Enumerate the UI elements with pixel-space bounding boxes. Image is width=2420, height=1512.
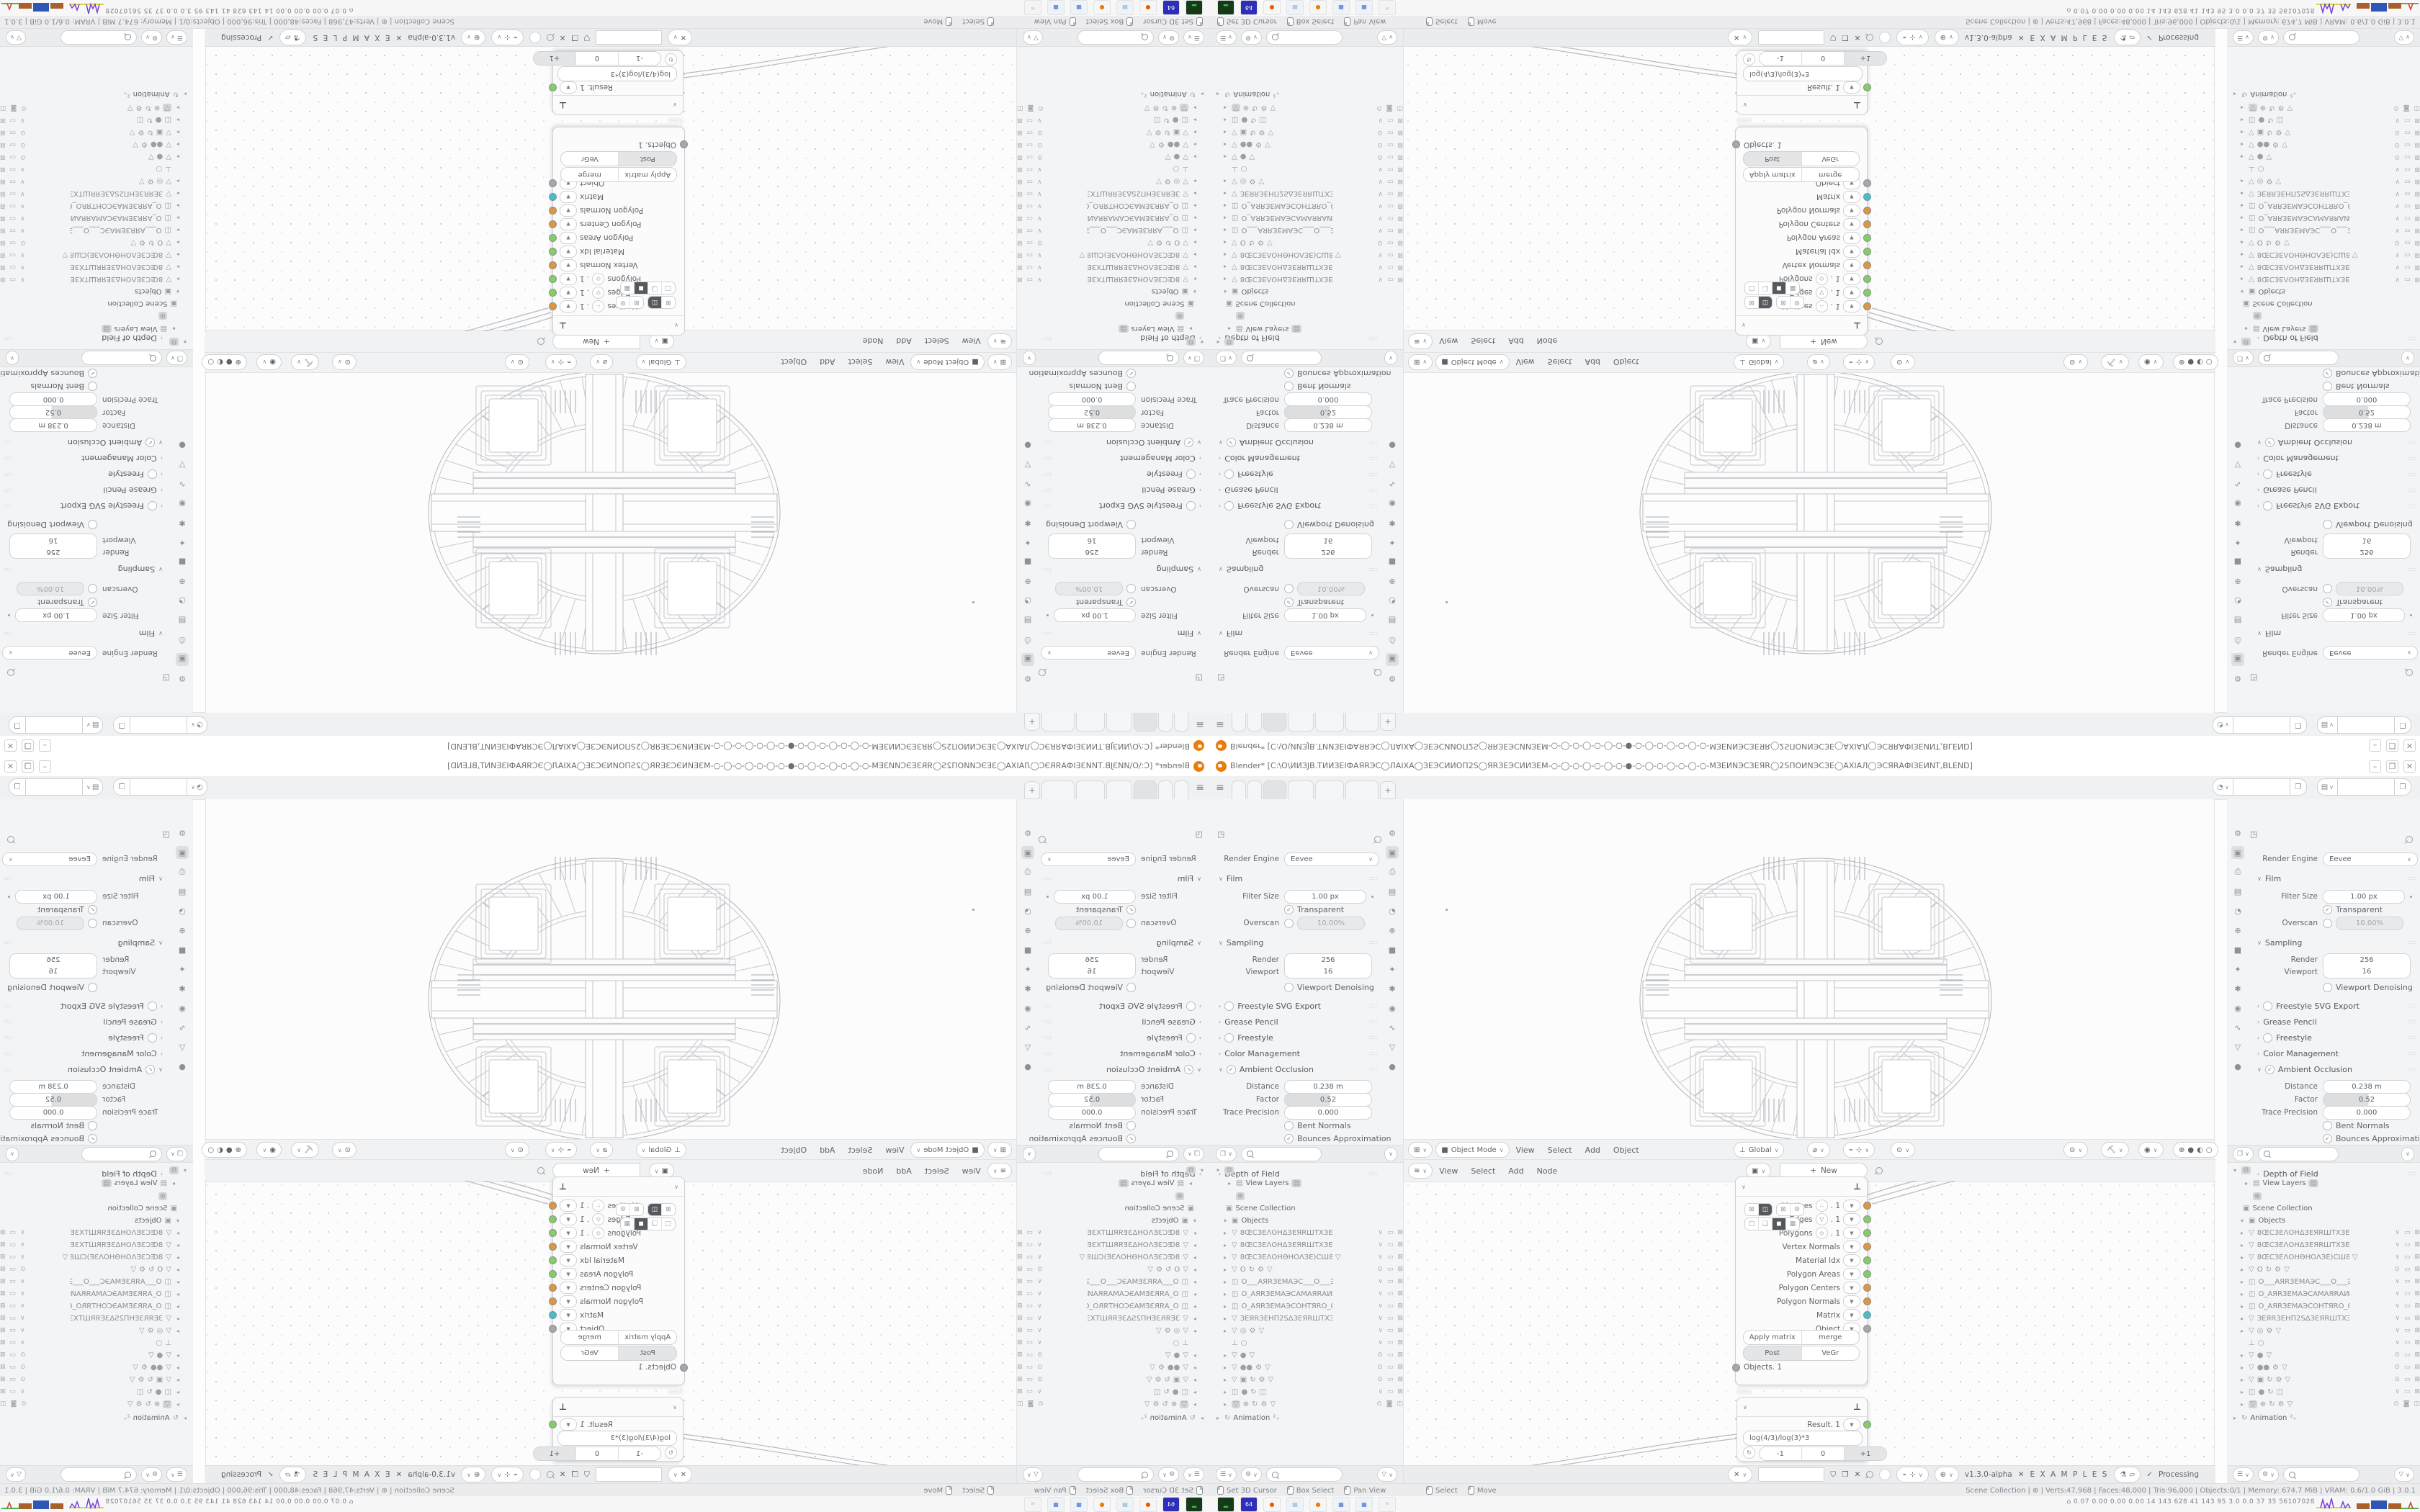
outliner-object-row[interactable]: ▸▽⊕↻⚙▽⊙◙◫ — [1222, 1398, 1409, 1410]
ao-checkbox[interactable]: ✓ — [2265, 1065, 2275, 1074]
outliner-object-row[interactable]: ▸▽ЗЕЯRЗЕНП2SΔЗЕЯRШТХЗЕТОТЗЕХТІЕ∨▭⊠ — [1222, 1313, 1409, 1324]
filter-size-field[interactable]: 1.00 px — [15, 609, 97, 623]
menu-add[interactable]: Add — [896, 1166, 911, 1176]
property-tab-icon[interactable]: ⊕ — [2231, 575, 2244, 588]
formula-input[interactable]: log(4/3)/log(3)*3 — [1743, 1431, 1863, 1446]
collapse-icon[interactable]: ∨ — [673, 1404, 677, 1410]
close-button[interactable]: ✕ — [2403, 760, 2416, 773]
viewport-denoising-toggle[interactable] — [1284, 983, 1294, 992]
property-tab-icon[interactable]: ▤ — [1021, 614, 1034, 627]
section-color-management[interactable]: ›Color Management∷∷ — [2249, 452, 2420, 465]
post-button[interactable]: Post — [619, 1346, 677, 1360]
overlays-dropdown[interactable]: ◉∨ — [2138, 354, 2164, 370]
outliner-object-row[interactable]: ▸▽●●⚙▽⊙▭⊠ — [1011, 1362, 1198, 1373]
property-tab-icon[interactable]: ▤ — [2231, 885, 2244, 898]
editor-type-dropdown[interactable]: ≋∨ — [987, 333, 1012, 349]
floppy-64-icon[interactable]: 64 — [1162, 0, 1180, 15]
samples-render-field[interactable]: 256 — [2323, 546, 2411, 559]
snap-toggle[interactable]: ⌁⊹∨ — [545, 354, 577, 370]
outliner-object-row[interactable]: ▸▽⊕↻⚙▽⊙◙◫ — [2238, 102, 2420, 114]
workspace-tab[interactable] — [1288, 780, 1314, 799]
filter-size-field[interactable]: 1.00 px — [1054, 890, 1136, 904]
snap-target-dropdown[interactable]: ⌀∨ — [1807, 1142, 1830, 1158]
menu-add[interactable]: Add — [1508, 337, 1523, 346]
property-tab-icon[interactable]: ● — [176, 1060, 189, 1073]
overlay-toggle[interactable] — [529, 32, 541, 43]
display-mode-mini-button[interactable]: ▦ — [1786, 282, 1799, 294]
menu-burger-icon[interactable]: ≡ — [1216, 782, 1224, 793]
outliner-object-row[interactable]: ▸▽8ŒCЗЕΛОНѲНОΛЗЕ)СШ8▽∨▭⊠ — [2238, 1251, 2420, 1263]
processing-label[interactable]: Processing — [221, 33, 261, 42]
outliner-object-row[interactable]: ⊥○∨▭⊠ — [1011, 1337, 1198, 1349]
id-selector-viewlayer[interactable]: ▤∨ ❐ — [9, 779, 103, 795]
workspace-tab[interactable] — [1232, 780, 1246, 799]
ao-trace-field[interactable]: 0.000 — [1284, 393, 1372, 407]
property-tab-icon[interactable]: ⊕ — [176, 575, 189, 588]
node-editor-canvas[interactable]: ∨⊥ Vertices∴. 1▼Edges▽. 1▼Polygons◇. 1▼V… — [1404, 47, 2215, 331]
workspace-tab[interactable] — [1247, 713, 1262, 732]
result-node[interactable]: ∨⊥ Result. 1 ▼ log(4/3)/log(3)*3 ↻ -10+1 — [1736, 1397, 1868, 1462]
menu-burger-icon[interactable]: ≡ — [1196, 782, 1204, 793]
outliner-object-row[interactable]: ▸▽O↻⚙▽⊙▭⊠ — [0, 237, 181, 248]
id-selector-viewlayer[interactable]: ▤∨ ❐ — [2317, 717, 2411, 733]
socket-dropdown[interactable]: ▼ — [560, 1418, 577, 1431]
tree-type-dropdown[interactable]: ▣∨ — [649, 333, 674, 349]
property-tab-icon[interactable]: ◔ — [176, 904, 189, 917]
outliner-object-row[interactable]: ▸▽ЗЕЯRЗЕНП2SΔЗЕЯRШТХЗЕТОТЗЕХТІЕ∨▭⊠ — [0, 1313, 181, 1324]
section-film[interactable]: ∨Film∷∷ — [1210, 872, 1388, 885]
outliner-object-row[interactable]: ▸◫О_АЯRЗЕМАЭСАМАЯRАИNАП__О∨▭⊠ — [0, 212, 181, 224]
section-freestyle-svg[interactable]: ›Freestyle SVG Export∷∷ — [1032, 999, 1210, 1012]
blender-icon[interactable]: ● — [1309, 0, 1327, 15]
workspace-tab[interactable] — [1288, 713, 1314, 732]
transparent-checkbox[interactable]: ✓ — [2323, 905, 2332, 914]
node-output-socket-row[interactable]: Matrix▼ — [1816, 1308, 1868, 1322]
editor-type-dropdown[interactable]: ❐∨ — [1216, 351, 1237, 366]
copy-icon[interactable]: ❐ — [1842, 1470, 1848, 1479]
ao-distance-field[interactable]: 0.238 m — [1284, 1080, 1372, 1094]
property-tab-icon[interactable]: ⊕ — [2231, 924, 2244, 937]
proportional-edit[interactable]: ⊙∨ — [505, 1142, 529, 1158]
vegr-button[interactable]: VeGr — [561, 152, 619, 166]
outliner-object-row[interactable]: ▸▽O↻⚙▽⊙▭⊠ — [2238, 237, 2420, 248]
blender-icon[interactable]: ● — [1309, 1497, 1327, 1512]
apply-matrix-button[interactable]: Apply matrix — [1744, 168, 1802, 181]
result-output-socket[interactable] — [549, 84, 557, 91]
workspace-tab[interactable] — [1263, 780, 1286, 799]
outliner-object-row[interactable]: ▸▽ЗЕЯRЗЕНП2SΔЗЕЯRШТХЗЕТОТЗЕХТІЕ∨▭⊠ — [0, 188, 181, 199]
copy-icon[interactable]: ❐ — [1842, 33, 1848, 42]
pin-icon[interactable] — [545, 32, 555, 42]
workspace-tab[interactable] — [1041, 780, 1075, 799]
section-film[interactable]: ∨Film∷∷ — [1032, 627, 1210, 640]
workspace-tab[interactable] — [1315, 780, 1344, 799]
overscan-field[interactable]: 10.00% — [17, 917, 84, 930]
property-tab-icon[interactable]: ▣ — [1021, 653, 1034, 666]
section-grease-pencil[interactable]: ›Grease Pencil∷∷ — [1210, 1015, 1388, 1028]
filter-dropdown[interactable]: ∨ — [1384, 1147, 1397, 1161]
property-tab-icon[interactable]: ▤ — [1386, 885, 1399, 898]
viewport-3d[interactable] — [1404, 373, 2215, 713]
editor-type-dropdown[interactable]: ❐∨ — [2233, 351, 2254, 366]
outliner-object-row[interactable]: ▸▽8ŒCЗЕΛОНѲНОΛЗЕ)СШ8▽∨▭⊠ — [1011, 1251, 1198, 1263]
get-objects-data-node[interactable]: ∨⊥ Vertices∴. 1▼Edges▽. 1▼Polygons◇. 1▼V… — [1735, 127, 1868, 336]
outliner-object-row[interactable]: ▸▽●●⚙▽⊙▭⊠ — [0, 139, 181, 150]
ao-distance-field[interactable]: 0.238 m — [9, 419, 97, 433]
overscan-toggle[interactable] — [2323, 585, 2332, 594]
apply-matrix-button[interactable]: Apply matrix — [1744, 1331, 1802, 1344]
property-tab-icon[interactable]: ∿ — [2231, 478, 2244, 491]
workspace-tabs[interactable]: + — [1024, 713, 1188, 732]
node-output-socket-row[interactable]: Matrix▼ — [552, 190, 604, 204]
editor-type-dropdown[interactable]: ❐∨ — [1183, 1147, 1204, 1161]
property-tab-icon[interactable]: ◔ — [2231, 595, 2244, 608]
section-sampling[interactable]: ∨Sampling∷∷ — [1032, 936, 1210, 949]
ao-checkbox[interactable]: ✓ — [1227, 1065, 1236, 1074]
terminal-icon[interactable]: ▂ — [1217, 1497, 1234, 1512]
node-output-socket-row[interactable]: Matrix▼ — [1816, 190, 1868, 204]
node-output-socket-row[interactable]: Material Idx▼ — [552, 245, 624, 258]
id-selector-scene[interactable]: ◔∨ ❐ — [2213, 779, 2307, 795]
section-freestyle-svg[interactable]: ›Freestyle SVG Export∷∷ — [1210, 999, 1388, 1012]
property-tab-icon[interactable]: ✦ — [1021, 536, 1034, 549]
snap-target-dropdown[interactable]: ⌀∨ — [590, 1142, 613, 1158]
menu-burger-icon[interactable]: ≡ — [1216, 719, 1224, 730]
display-mode-mini-button[interactable]: ◼ — [634, 282, 647, 294]
section-sampling[interactable]: ∨Sampling∷∷ — [1032, 563, 1210, 576]
property-tab-icon[interactable]: ■ — [2231, 556, 2244, 569]
workspace-tab[interactable] — [1174, 780, 1188, 799]
ao-distance-field[interactable]: 0.238 m — [2323, 1080, 2411, 1094]
collapse-icon[interactable]: ∨ — [1742, 323, 1746, 329]
outliner-object-row[interactable]: ▸▽◎⚙▽∨▭⊠ — [1011, 1325, 1198, 1336]
search-input[interactable] — [81, 351, 162, 366]
collapse-icon[interactable]: ∨ — [673, 102, 677, 109]
section-color-management[interactable]: ›Color Management∷∷ — [1210, 1047, 1388, 1060]
unlink-icon[interactable]: ✕ — [560, 1470, 566, 1479]
outliner-object-row[interactable]: ⊥○∨▭⊠ — [2238, 1337, 2420, 1349]
filter-size-field[interactable]: 1.00 px — [2323, 609, 2405, 623]
workspace-tab[interactable] — [1134, 780, 1157, 799]
display-mode-mini-button[interactable]: ◼ — [1773, 1218, 1786, 1230]
title-bar[interactable]: Blender* [C:\O\ИИЗЈВ.ТИИЗЕІФАЯRЭС◯ЛАІХА◯… — [0, 756, 1210, 777]
property-tab-icon[interactable]: ⚙ — [1386, 672, 1399, 685]
property-tab-icon[interactable]: ⚙ — [1386, 827, 1399, 840]
outliner-object-row[interactable]: ▸▽⊕↻⚙▽⊙◙◫ — [0, 1398, 181, 1410]
ao-factor-slider[interactable]: 0.52 — [9, 1093, 97, 1107]
outliner-object-row[interactable]: ▸◫О_АЯRЗЕМАЭСОНТЯRО_О_ОЯRТН∨▭⊠ — [0, 200, 181, 212]
bent-normals-toggle[interactable] — [1284, 382, 1294, 392]
vegr-button[interactable]: VeGr — [1802, 152, 1860, 166]
samples-viewport-field[interactable]: 16 — [1284, 534, 1372, 546]
section-grease-pencil[interactable]: ›Grease Pencil∷∷ — [1032, 484, 1210, 497]
snap-target-dropdown[interactable]: ⌀∨ — [1807, 354, 1830, 370]
merge-button[interactable]: merge — [561, 168, 619, 181]
viewport-denoising-toggle[interactable] — [88, 983, 97, 992]
property-tab-icon[interactable]: ⊕ — [1386, 575, 1399, 588]
bounces-checkbox[interactable]: ✓ — [1126, 369, 1136, 379]
filter-dropdown[interactable]: ▽∨ — [2394, 1467, 2414, 1482]
menu-add[interactable]: Add — [1508, 1166, 1523, 1176]
workspace-tab[interactable] — [1263, 713, 1286, 732]
node-output-socket-row[interactable]: Vertex Normals▼ — [1782, 1240, 1868, 1254]
visibility-dropdown[interactable]: ⊙∨ — [332, 1142, 357, 1158]
merge-button[interactable]: merge — [1802, 1331, 1860, 1344]
viewport-denoising-toggle[interactable] — [1126, 983, 1136, 992]
workspace-tab[interactable] — [1345, 780, 1379, 799]
ao-factor-slider[interactable]: 0.52 — [1284, 1093, 1372, 1107]
node-output-socket-row[interactable]: Polygon Areas▼ — [552, 231, 633, 245]
freestyle-toggle[interactable] — [1186, 1033, 1196, 1043]
section-freestyle[interactable]: ›Freestyle∷∷ — [1210, 468, 1388, 481]
id-selector-viewlayer[interactable]: ▤∨ ❐ — [2317, 779, 2411, 795]
result-output-socket[interactable] — [1863, 84, 1871, 91]
filter-dropdown[interactable]: ∨ — [1023, 351, 1036, 366]
section-freestyle-svg[interactable]: ›Freestyle SVG Export∷∷ — [0, 999, 171, 1012]
section-film[interactable]: ∨Film∷∷ — [2249, 872, 2420, 885]
section-ambient-occlusion[interactable]: ∨✓Ambient Occlusion∷∷ — [1032, 436, 1210, 449]
step-button[interactable]: 0 — [575, 1447, 618, 1460]
get-objects-data-node[interactable]: ∨⊥ Vertices∴. 1▼Edges▽. 1▼Polygons◇. 1▼V… — [552, 127, 685, 336]
outliner-object-row[interactable]: ▸◫●↻◫∨▭⊠ — [2238, 1386, 2420, 1398]
tree-selector-dropdown[interactable]: ✕∨ — [668, 30, 692, 45]
outliner-object-row[interactable]: ▸◫О_АЯRЗЕМАЭСОНТЯRО_О_ОЯRТН∨▭⊠ — [2238, 200, 2420, 212]
outliner-object-row[interactable]: ▸◫О_АЯRЗЕМАЭСОНТЯRО_О_ОЯRТН∨▭⊠ — [2238, 1300, 2420, 1312]
outliner-object-row[interactable]: ▸▽◎⚙▽∨▭⊠ — [0, 176, 181, 187]
display-mode-mini-button[interactable]: ▦ — [621, 282, 634, 294]
outliner-object-row[interactable]: ▸◫О_АЯRЗЕМАЭСАМАЯRАИNАП__О∨▭⊠ — [0, 1288, 181, 1300]
visibility-dropdown[interactable]: ⊙∨ — [2063, 354, 2088, 370]
outliner-object-row[interactable]: ▸▽●●⚙▽⊙▭⊠ — [2238, 1362, 2420, 1373]
cycle-icon[interactable]: ↻ — [1743, 1446, 1755, 1459]
outliner-object-row[interactable]: ▸▽O↻⚙▽⊙▭⊠ — [1222, 1264, 1409, 1275]
menu-select[interactable]: Select — [1471, 1166, 1495, 1176]
freestyle-svg-toggle[interactable] — [1224, 502, 1234, 511]
outliner-object-row[interactable]: ▸▽●▽⊙▭⊠ — [1011, 1349, 1198, 1361]
node-output-socket-row[interactable]: Polygon Normals▼ — [1777, 1295, 1868, 1308]
display-mode-mini-button[interactable]: ◼ — [634, 1218, 647, 1230]
editor-type-dropdown[interactable]: ≋∨ — [987, 1163, 1012, 1179]
section-sampling[interactable]: ∨Sampling∷∷ — [2249, 936, 2420, 949]
display-mode-mini-button[interactable]: ❏ — [647, 282, 661, 294]
samples-viewport-field[interactable]: 16 — [2323, 534, 2411, 546]
input-socket[interactable] — [680, 1364, 688, 1372]
outliner-object-row[interactable]: ▸▽●●⚙▽⊙▭⊠ — [2238, 139, 2420, 150]
property-tab-icon[interactable]: ✱ — [176, 982, 189, 995]
property-tab-icon[interactable]: ◔ — [2231, 904, 2244, 917]
outliner-object-row[interactable]: ▸▽ЗЕЯRЗЕНП2SΔЗЕЯRШТХЗЕТОТЗЕХТІЕ∨▭⊠ — [2238, 1313, 2420, 1324]
bent-normals-toggle[interactable] — [1126, 1121, 1136, 1130]
section-freestyle[interactable]: ›Freestyle∷∷ — [1032, 468, 1210, 481]
property-tab-icon[interactable]: ▤ — [1386, 614, 1399, 627]
outliner-object-row[interactable]: ▸▽8ŒCЗЕΛОНΔЗЕЯRШТХЗЕТОТЗЕХТІЅ∨▭⊠ — [1011, 1239, 1198, 1251]
property-tab-icon[interactable]: ▤ — [176, 885, 189, 898]
filter-dropdown[interactable]: ∨ — [6, 351, 19, 366]
render-engine-dropdown[interactable]: Eevee∨ — [1041, 852, 1136, 866]
outliner-object-row[interactable]: ▸◫О___АЯRЗЕМАЭС___О___ЭСАМЗЕ∨▭⊠ — [1011, 1276, 1198, 1287]
node-output-socket-row[interactable]: Polygon Centers▼ — [552, 1281, 641, 1295]
result-node[interactable]: ∨⊥ Result. 1 ▼ log(4/3)/log(3)*3 ↻ -10+1 — [1736, 50, 1868, 115]
fake-user-icon[interactable]: ⛉ — [584, 33, 590, 42]
outliner-object-row[interactable]: ▸◫О_АЯRЗЕМАЭСОНТЯRО_О_ОЯRТН∨▭⊠ — [1222, 1300, 1409, 1312]
outliner-object-row[interactable]: ▸▽O↻⚙▽⊙▭⊠ — [2238, 1264, 2420, 1275]
search-input[interactable] — [1266, 1467, 1343, 1482]
samples-render-field[interactable]: 256 — [1284, 546, 1372, 559]
editor-type-dropdown[interactable]: ☰∨ — [2233, 1467, 2254, 1482]
notepad-icon[interactable]: ▤ — [1286, 1497, 1304, 1512]
outliner-object-row[interactable]: ▸▽8ŒCЗЕΛОНΔЗЕЯRШТХЗЕТОТЗЕХТІЅ∨▭⊠ — [0, 261, 181, 273]
samples-viewport-field[interactable]: 16 — [9, 534, 97, 546]
outliner-object-row[interactable]: ▸▽⊕↻⚙▽⊙◙◫ — [1222, 102, 1409, 114]
outliner-object-row[interactable]: ▸▽ЗЕЯRЗЕНП2SΔЗЕЯRШТХЗЕТОТЗЕХТІЕ∨▭⊠ — [1011, 188, 1198, 199]
viewport-denoising-toggle[interactable] — [88, 521, 97, 530]
render-engine-dropdown[interactable]: Eevee∨ — [2, 647, 97, 660]
step-button[interactable]: 0 — [575, 52, 618, 65]
bent-normals-toggle[interactable] — [1126, 382, 1136, 392]
section-freestyle-svg[interactable]: ›Freestyle SVG Export∷∷ — [2249, 999, 2420, 1012]
outliner-object-row[interactable]: ▸▽8ŒCЗЕΛОНΔЗЕЯRШТХЗЕТОТЗЕХТІЅ∨▭⊠ — [2238, 274, 2420, 285]
minimize-button[interactable]: – — [2369, 760, 2381, 773]
tree-name[interactable]: E X A M P L E S — [2030, 33, 2109, 42]
snap-toggle[interactable]: ⌁⊹∨ — [1843, 1142, 1875, 1158]
gizmo-dropdown[interactable]: ⛏∨ — [291, 354, 319, 370]
formula-input[interactable]: log(4/3)/log(3)*3 — [557, 66, 677, 81]
section-freestyle[interactable]: ›Freestyle∷∷ — [1210, 1031, 1388, 1044]
filter-size-field[interactable]: 1.00 px — [15, 890, 97, 904]
outliner-object-row[interactable]: ▸◫О_АЯRЗЕМАЭСАМАЯRАИNАП__О∨▭⊠ — [1222, 212, 1409, 224]
property-tab-icon[interactable]: ✦ — [2231, 536, 2244, 549]
terminal-icon[interactable]: ▂ — [1217, 0, 1234, 15]
ao-distance-field[interactable]: 0.238 m — [1048, 419, 1136, 433]
minimize-button[interactable]: – — [39, 739, 51, 752]
menu-add[interactable]: Add — [820, 358, 835, 367]
orientation-dropdown[interactable]: ⊥Global∨ — [636, 354, 686, 370]
samples-viewport-field[interactable]: 16 — [1284, 966, 1372, 978]
outliner-object-row[interactable]: ⊥○∨▭⊠ — [0, 1337, 181, 1349]
menu-view[interactable]: View — [962, 1166, 981, 1176]
post-button[interactable]: Post — [619, 152, 677, 166]
property-tab-icon[interactable]: ∿ — [176, 478, 189, 491]
render-engine-dropdown[interactable]: Eevee∨ — [1284, 852, 1379, 866]
copy-icon[interactable]: ❐ — [571, 33, 578, 42]
socket-dropdown[interactable]: ▼ — [1843, 81, 1860, 94]
menu-node[interactable]: Node — [1537, 337, 1558, 346]
workspace-tab[interactable] — [1345, 713, 1379, 732]
section-freestyle[interactable]: ›Freestyle∷∷ — [1032, 1031, 1210, 1044]
new-tree-button[interactable]: +New — [1780, 333, 1868, 349]
editor-type-dropdown[interactable]: ☰∨ — [1216, 1467, 1237, 1482]
result-output-socket[interactable] — [549, 1421, 557, 1428]
render-engine-dropdown[interactable]: Eevee∨ — [2323, 647, 2418, 660]
outliner-object-row[interactable]: ▸◫О___АЯRЗЕМАЭС___О___ЭСАМЗЕ∨▭⊠ — [1011, 225, 1198, 236]
section-freestyle-svg[interactable]: ›Freestyle SVG Export∷∷ — [0, 500, 171, 513]
samples-viewport-field[interactable]: 16 — [9, 966, 97, 978]
viewlayer-name-input[interactable] — [26, 716, 82, 734]
viewlayer-name-input[interactable] — [26, 778, 82, 796]
node-output-socket-row[interactable]: Vertex Normals▼ — [552, 1240, 638, 1254]
copy-icon[interactable]: ❐ — [113, 716, 130, 734]
outliner-object-row[interactable]: ▸◫●↻◫∨▭⊠ — [0, 114, 181, 126]
restore-button[interactable]: ❐ — [2386, 739, 2398, 752]
freestyle-svg-toggle[interactable] — [2263, 1002, 2272, 1011]
properties-tab-strip[interactable]: ⚙▣⎙▤◔⊕■✦✱◉∿▽● — [2228, 827, 2247, 1073]
copy-icon[interactable]: ❐ — [9, 778, 26, 796]
overlays-dropdown[interactable]: ◉∨ — [2138, 1142, 2164, 1158]
outliner-object-row[interactable]: ▸▽●●⚙▽⊙▭⊠ — [1222, 139, 1409, 150]
outliner-object-row[interactable]: ▸◫О___АЯRЗЕМАЭС___О___ЭСАМЗЕ∨▭⊠ — [2238, 225, 2420, 236]
section-film[interactable]: ∨Film∷∷ — [0, 627, 171, 640]
ao-checkbox[interactable]: ✓ — [1227, 438, 1236, 448]
copy-icon[interactable]: ❐ — [9, 716, 26, 734]
property-tab-icon[interactable]: ⊕ — [1021, 924, 1034, 937]
node-output-socket-row[interactable]: Polygon Centers▼ — [1779, 217, 1868, 231]
visibility-dropdown[interactable]: ⊙∨ — [2063, 1142, 2088, 1158]
formula-input[interactable]: log(4/3)/log(3)*3 — [557, 1431, 677, 1446]
pin-icon[interactable] — [1874, 336, 1884, 346]
unlink-icon[interactable]: ✕ — [560, 33, 566, 42]
node-output-socket-row[interactable]: Polygon Areas▼ — [552, 1267, 633, 1281]
gizmo-dropdown[interactable]: ⛏∨ — [2101, 1142, 2129, 1158]
notepad-icon[interactable]: ▤ — [1116, 0, 1134, 15]
restore-button[interactable]: ❐ — [22, 760, 34, 773]
workspace-tab[interactable] — [1134, 713, 1157, 732]
node-output-socket-row[interactable]: Matrix▼ — [552, 1308, 604, 1322]
section-grease-pencil[interactable]: ›Grease Pencil∷∷ — [1210, 484, 1388, 497]
unlink-icon[interactable]: ✕ — [1855, 33, 1861, 42]
proportional-edit[interactable]: ⊙∨ — [1891, 1142, 1915, 1158]
freestyle-toggle[interactable] — [1224, 1033, 1234, 1043]
get-objects-data-node[interactable]: ∨⊥ Vertices∴. 1▼Edges▽. 1▼Polygons◇. 1▼V… — [1735, 1176, 1868, 1385]
apply-matrix-button[interactable]: Apply matrix — [619, 1331, 677, 1344]
post-button[interactable]: Post — [1744, 152, 1802, 166]
outliner-object-row[interactable]: ▸▽ЗЕЯRЗЕНП2SΔЗЕЯRШТХЗЕТОТЗЕХТІЕ∨▭⊠ — [1222, 188, 1409, 199]
outliner-object-row[interactable]: ▸▽O↻⚙▽⊙▭⊠ — [1222, 237, 1409, 248]
step-button[interactable]: -1 — [618, 52, 660, 65]
render-engine-dropdown[interactable]: Eevee∨ — [1284, 647, 1379, 660]
outliner-object-row[interactable]: ▸▽▣↻⚙▽⊙▭⊠ — [1011, 127, 1198, 138]
section-sampling[interactable]: ∨Sampling∷∷ — [0, 936, 171, 949]
editor-type-dropdown[interactable]: ☰∨ — [1216, 30, 1237, 45]
freestyle-toggle[interactable] — [1186, 470, 1196, 480]
copy-icon[interactable]: ❐ — [113, 778, 130, 796]
outliner-object-row[interactable]: ▸▽▣↻⚙▽⊙▭⊠ — [2238, 127, 2420, 138]
outliner-object-row[interactable]: ▸▽8ŒCЗЕΛОНΔЗЕЯRШТХЗЕТОТЗЕХТІЅ∨▭⊠ — [2238, 261, 2420, 273]
gizmo-dropdown[interactable]: ⛏∨ — [291, 1142, 319, 1158]
processing-label[interactable]: Processing — [2159, 33, 2199, 42]
property-tab-icon[interactable]: ▣ — [1386, 846, 1399, 859]
samples-render-field[interactable]: 256 — [2323, 953, 2411, 967]
step-button[interactable]: +1 — [534, 52, 575, 65]
calculator-icon[interactable]: ▦ — [1070, 0, 1088, 15]
bounces-checkbox[interactable]: ✓ — [1284, 1134, 1294, 1143]
search-input[interactable] — [1241, 1147, 1322, 1161]
outliner-object-row[interactable]: ▸▽●●⚙▽⊙▭⊠ — [0, 1362, 181, 1373]
overscan-toggle[interactable] — [1126, 919, 1136, 928]
cycle-icon[interactable]: ↻ — [665, 1446, 677, 1459]
scene-name-input[interactable] — [130, 716, 187, 734]
filter-dropdown[interactable]: ▽∨ — [1377, 30, 1397, 45]
ao-factor-slider[interactable]: 0.52 — [1048, 406, 1136, 420]
bent-normals-toggle[interactable] — [88, 1121, 97, 1130]
workspace-tabs[interactable]: + — [1024, 780, 1188, 799]
firefox-icon[interactable]: ● — [1263, 1497, 1281, 1512]
outliner-object-row[interactable]: ▸▽●●⚙▽⊙▭⊠ — [1011, 139, 1198, 150]
outliner-object-row[interactable]: ▸▽◎⚙▽∨▭⊠ — [2238, 176, 2420, 187]
processing-label[interactable]: Processing — [221, 1470, 261, 1479]
step-button[interactable]: -1 — [618, 1447, 660, 1460]
editor-type-dropdown[interactable]: ≋∨ — [1408, 1163, 1433, 1179]
property-tab-icon[interactable]: ● — [2231, 1060, 2244, 1073]
